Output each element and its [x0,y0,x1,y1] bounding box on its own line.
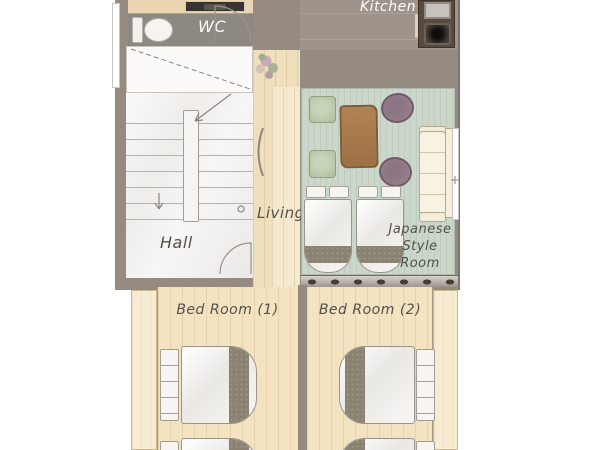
room-label-japanese-line1: Japanese [385,221,455,238]
washbasin-icon [185,1,245,12]
staircase-railing [183,110,199,222]
balcony-strip-right [433,290,458,450]
bed-bedroom1-b [181,438,257,450]
floor-cushion-2 [309,150,336,178]
floor-plan: WC Hall Kitchen Living Japanese Style Ro… [0,0,600,450]
bed-pillow [358,186,378,198]
bed-pillow [381,186,401,198]
window-left [112,3,120,88]
bed-runner [229,439,249,450]
bed-pillow [329,186,349,198]
balcony-strip-left [131,290,157,450]
bed-japanese-1 [304,199,352,273]
bed-bedroom1-a [181,346,257,424]
room-label-hall: Hall [160,233,193,252]
cabinet-handle [415,14,418,38]
bed-runner [305,246,352,263]
kitchen-sink-icon [424,2,451,19]
bed-runner [345,439,365,450]
wall-bedroom-divider [298,285,307,450]
bed-runner [229,347,249,424]
sofa-seat [419,131,446,215]
washbasin-bowl [204,4,226,10]
window-right [452,128,459,220]
staircase-left-flight [126,108,183,228]
stove-icon [424,23,451,45]
bed-runner [345,347,365,424]
room-label-japanese: Japanese Style Room [385,221,455,272]
room-label-japanese-line2: Style [385,238,455,255]
toilet-tank [132,17,143,43]
bed-headboard-pillows [160,441,179,450]
room-label-bedroom1: Bed Room (1) [157,302,298,318]
toilet-icon [144,18,173,42]
bed-headboard-pillows [416,349,435,421]
void-area [126,46,253,93]
room-label-living: Living [257,204,305,222]
sliding-door-rail [301,275,458,287]
room-label-japanese-line3: Room [385,255,455,272]
room-label-wc: WC [198,17,226,36]
low-table-icon [339,105,378,169]
bed-pillow [306,186,326,198]
floor-cushion-1 [309,96,336,123]
room-label-bedroom2: Bed Room (2) [307,302,433,318]
bed-bedroom2-b [339,438,415,450]
bed-headboard-pillows [416,441,435,450]
staircase-right-flight [199,108,253,228]
bed-headboard-pillows [160,349,179,421]
room-label-kitchen: Kitchen [360,0,416,15]
living-floor-light [272,87,300,287]
bed-bedroom2-a [339,346,415,424]
